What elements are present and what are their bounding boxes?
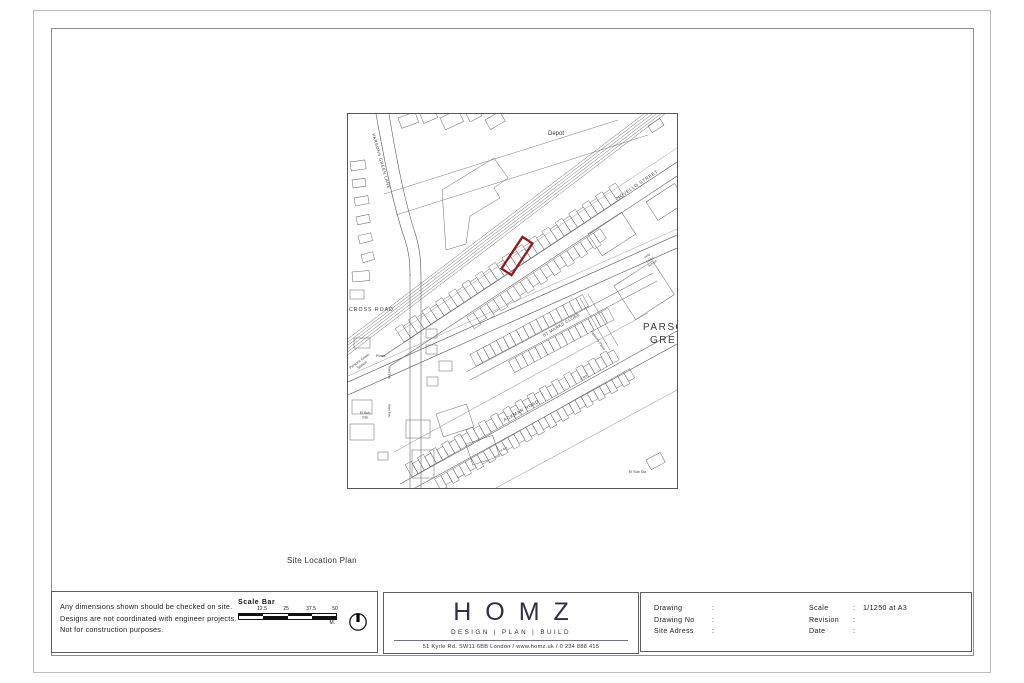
label-spot-height-44: 4.4m xyxy=(500,446,509,453)
site-address-label: Site Adress xyxy=(654,628,712,635)
date-row: Date : xyxy=(809,628,907,635)
logo-tagline: DESIGN | PLAN | BUILD xyxy=(384,629,638,636)
scale-row: Scale : 1/1250 at A3 xyxy=(809,605,907,612)
scale-bar-ticks: 12.5 25 37.5 50 xyxy=(238,606,338,613)
logo-panel: HOMZ DESIGN | PLAN | BUILD 51 Kyrle Rd. … xyxy=(383,592,639,654)
scale-bar-unit: M. xyxy=(238,620,335,626)
scale-bar-graphic xyxy=(238,613,337,620)
colon: : xyxy=(712,605,722,612)
scale-tick-37-5: 37.5 xyxy=(301,606,321,612)
date-label: Date xyxy=(809,628,853,635)
label-el-sub-1: El Sub xyxy=(360,411,371,415)
label-el-sub-sta-left: El Sub Sta xyxy=(360,411,371,420)
north-arrow-icon xyxy=(345,609,371,635)
note-line: Any dimensions shown should be checked o… xyxy=(60,601,237,613)
colon: : xyxy=(853,605,863,612)
map-linework xyxy=(348,114,677,488)
label-el-sub-sta-right: El Sub Sta xyxy=(629,470,646,474)
scale-value: 1/1250 at A3 xyxy=(863,605,907,612)
label-el-sub-2: Sta xyxy=(362,416,367,420)
site-location-map: Depot NOVELLO STREET PARSONS GREEN LANE … xyxy=(347,113,678,489)
label-ward-bdy-2: Ward Bdy xyxy=(388,404,392,418)
revision-row: Revision : xyxy=(809,617,907,624)
homz-logo: HOMZ xyxy=(384,600,638,625)
scale-bar: Scale Bar 12.5 25 37.5 50 M. xyxy=(238,599,338,626)
scale-label: Scale xyxy=(809,605,853,612)
label-cross-road: CROSS ROAD xyxy=(349,307,394,313)
scale-bar-title: Scale Bar xyxy=(238,599,338,606)
drawing-no-row: Drawing No : xyxy=(654,617,722,624)
site-boundary-outline xyxy=(502,237,533,275)
revision-label: Revision xyxy=(809,617,853,624)
colon: : xyxy=(853,628,863,635)
notes-panel: Any dimensions shown should be checked o… xyxy=(51,591,378,653)
colon: : xyxy=(853,617,863,624)
notes-text: Any dimensions shown should be checked o… xyxy=(60,601,237,636)
label-ward-bdy-1: Ward Bdy xyxy=(388,366,392,380)
logo-contact-line: 51 Kyrle Rd. SW11 6BB London / www.homz.… xyxy=(394,640,628,650)
drawing-caption: Site Location Plan xyxy=(287,556,357,565)
colon: : xyxy=(712,628,722,635)
label-palmers-place: Palmers Place xyxy=(590,330,607,351)
label-depot: Depot xyxy=(548,131,564,137)
drawing-info-col2: Scale : 1/1250 at A3 Revision : Date : xyxy=(809,605,907,640)
map-canvas: Depot NOVELLO STREET PARSONS GREEN LANE … xyxy=(348,114,677,488)
note-line: Designs are not coordinated with enginee… xyxy=(60,613,237,625)
drawing-row: Drawing : xyxy=(654,605,722,612)
label-posts: Posts xyxy=(376,354,386,358)
drawing-info-col1: Drawing : Drawing No : Site Adress : xyxy=(654,605,722,640)
scale-tick-25: 25 xyxy=(276,606,296,612)
note-line: Not for construction purposes. xyxy=(60,624,237,636)
drawing-label: Drawing xyxy=(654,605,712,612)
scale-tick-12-5: 12.5 xyxy=(252,606,272,612)
label-parsons-green-1: PARSONS xyxy=(643,322,677,333)
drawing-info-panel: Drawing : Drawing No : Site Adress : Sca… xyxy=(640,592,972,652)
label-parsons-green-2: GREEN xyxy=(650,335,677,346)
terrace-rows xyxy=(395,183,636,488)
colon: : xyxy=(712,617,722,624)
site-address-row: Site Adress : xyxy=(654,628,722,635)
parsons-green-lane-kerb2 xyxy=(389,114,421,284)
label-novello-street: NOVELLO STREET xyxy=(615,169,659,201)
large-building-outline xyxy=(442,158,508,250)
drawing-no-label: Drawing No xyxy=(654,617,712,624)
label-ackmar-road: ACKMAR ROAD xyxy=(503,399,540,423)
label-station: Parsons Green Station xyxy=(348,352,373,373)
scale-tick-50: 50 xyxy=(325,606,345,612)
